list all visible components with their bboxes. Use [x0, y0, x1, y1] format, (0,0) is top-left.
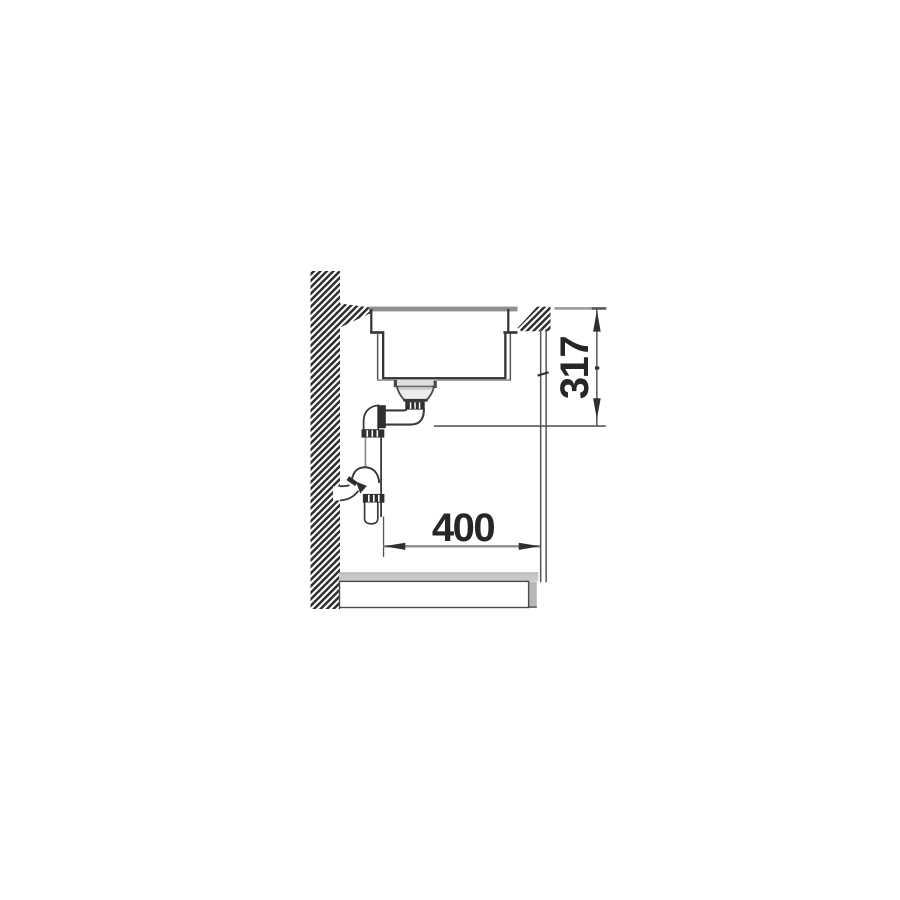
svg-text:317: 317: [553, 337, 597, 399]
svg-text:400: 400: [432, 506, 494, 550]
